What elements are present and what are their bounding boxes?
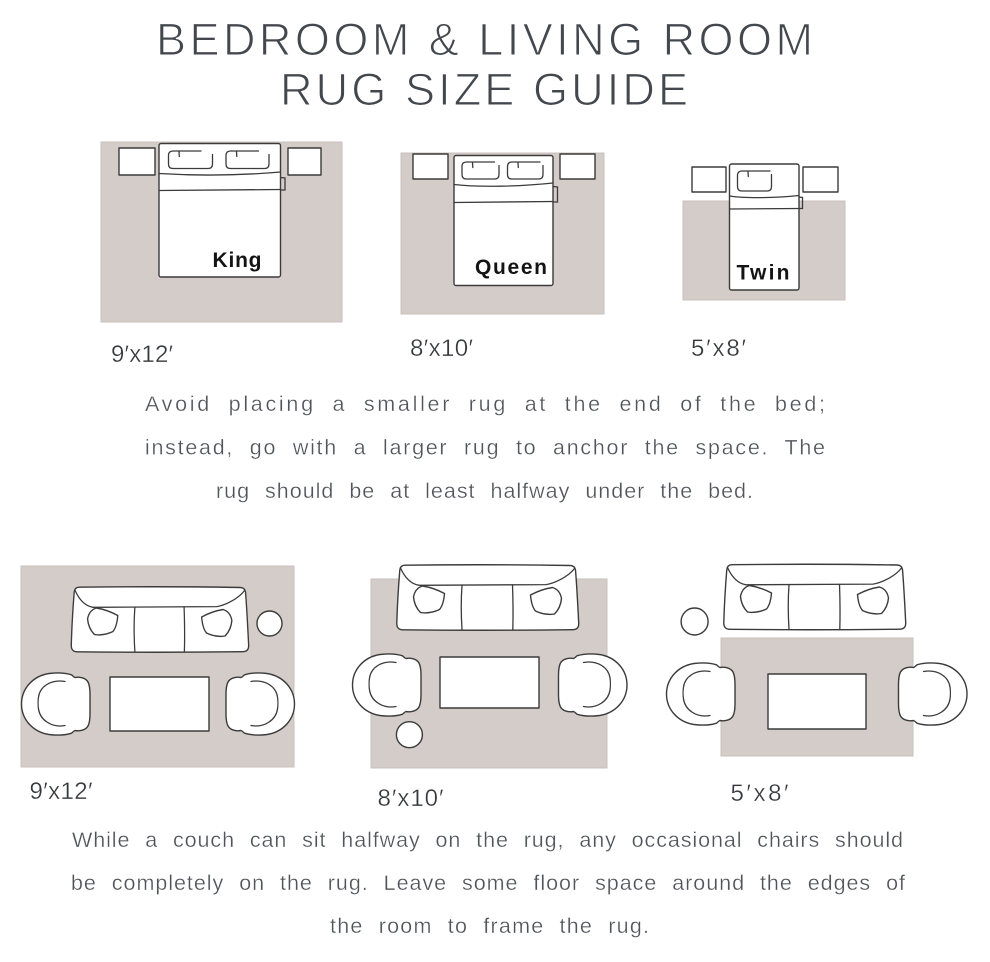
svg-text:Twin: Twin <box>737 262 790 285</box>
svg-text:5′x8′: 5′x8′ <box>691 335 747 362</box>
svg-text:Queen: Queen <box>475 256 547 279</box>
svg-text:instead, go with a larger rug: instead, go with a larger rug to anchor … <box>145 436 825 460</box>
svg-text:8′x10′: 8′x10′ <box>410 335 474 362</box>
svg-text:9′x12′: 9′x12′ <box>30 778 94 805</box>
svg-text:9′x12′: 9′x12′ <box>111 341 174 368</box>
svg-text:Avoid placing a smaller rug at: Avoid placing a smaller rug at the end o… <box>145 392 825 416</box>
svg-text:be completely on the rug. Leav: be completely on the rug. Leave some flo… <box>71 871 905 895</box>
svg-text:5′x8′: 5′x8′ <box>731 780 790 807</box>
svg-text:rug should be at least halfway: rug should be at least halfway under the… <box>216 479 753 503</box>
svg-text:the room to frame the rug.: the room to frame the rug. <box>330 914 649 938</box>
svg-text:King: King <box>213 249 262 272</box>
svg-text:BEDROOM & LIVING ROOM: BEDROOM & LIVING ROOM <box>156 14 813 65</box>
svg-text:8′x10′: 8′x10′ <box>378 785 445 812</box>
svg-text:While a couch can sit halfway: While a couch can sit halfway on the rug… <box>72 828 903 852</box>
svg-text:RUG SIZE GUIDE: RUG SIZE GUIDE <box>280 64 688 115</box>
